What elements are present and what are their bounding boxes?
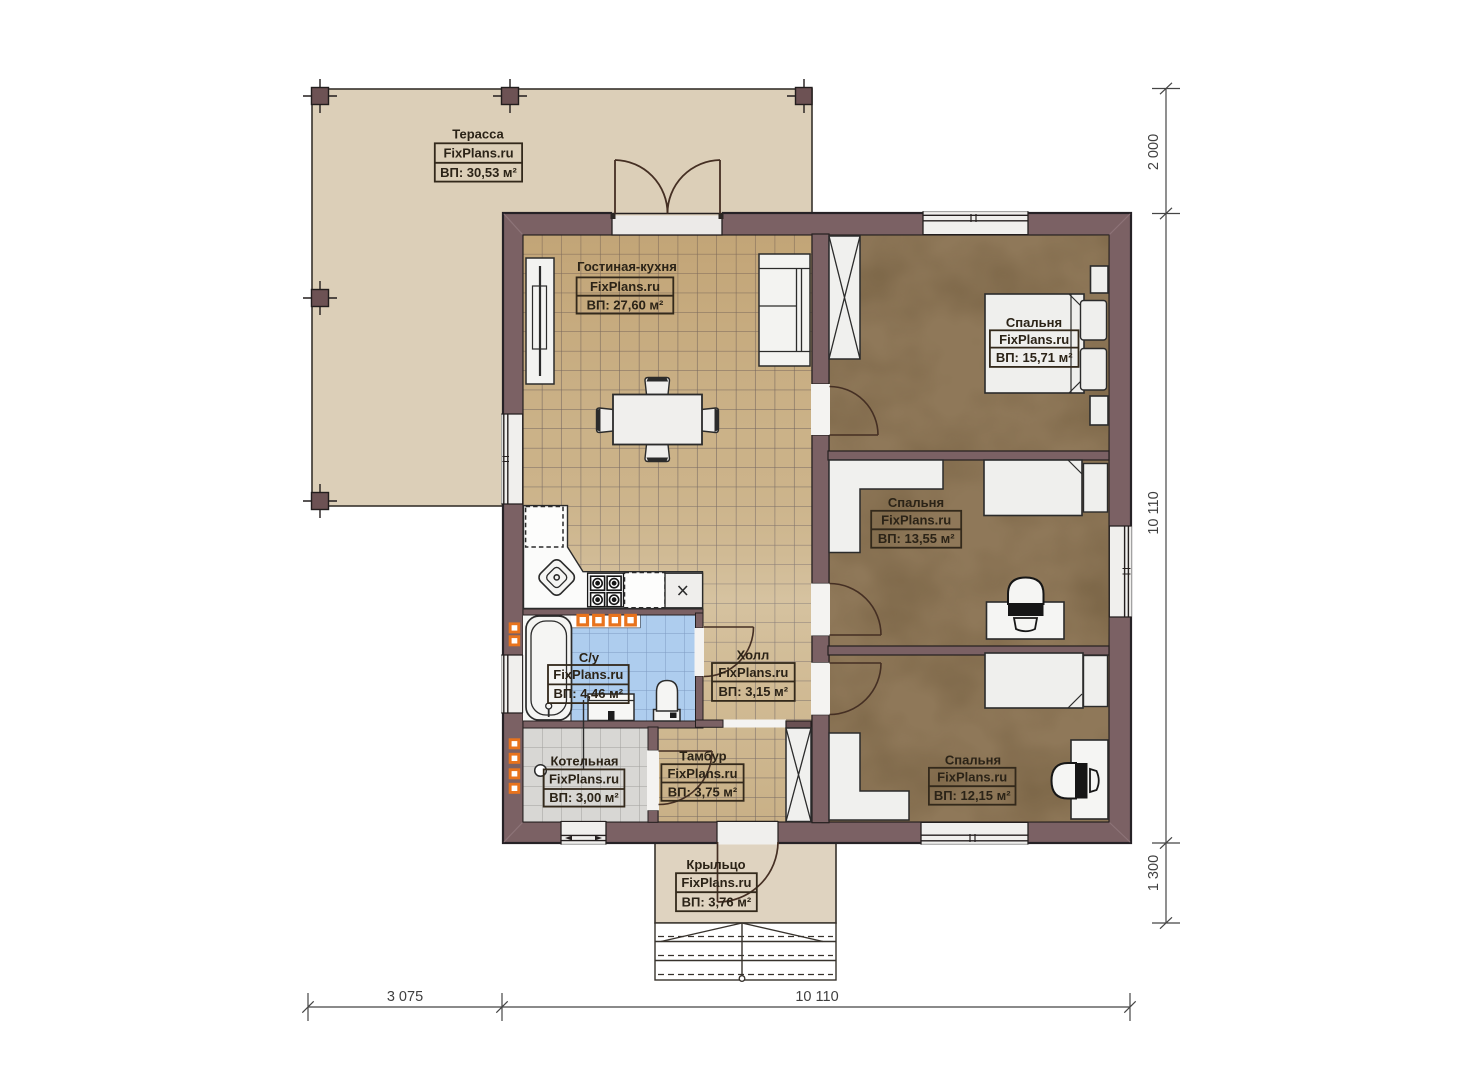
svg-text:ВП: 13,55 м²: ВП: 13,55 м² xyxy=(878,531,955,546)
svg-text:ВП: 4,46 м²: ВП: 4,46 м² xyxy=(554,686,624,701)
svg-text:ВП: 30,53 м²: ВП: 30,53 м² xyxy=(440,165,517,180)
svg-text:10 110: 10 110 xyxy=(795,989,838,1005)
svg-text:Спальня: Спальня xyxy=(1006,315,1062,330)
svg-text:2 000: 2 000 xyxy=(1146,134,1162,170)
svg-text:FixPlans.ru: FixPlans.ru xyxy=(553,667,623,682)
svg-text:ВП: 3,75 м²: ВП: 3,75 м² xyxy=(668,785,738,800)
svg-text:FixPlans.ru: FixPlans.ru xyxy=(443,146,513,161)
svg-text:FixPlans.ru: FixPlans.ru xyxy=(937,770,1007,785)
svg-text:FixPlans.ru: FixPlans.ru xyxy=(999,332,1069,347)
svg-text:Терасса: Терасса xyxy=(452,127,504,142)
svg-text:Спальня: Спальня xyxy=(945,752,1001,767)
svg-text:ВП: 15,71 м²: ВП: 15,71 м² xyxy=(996,350,1073,365)
svg-text:1 300: 1 300 xyxy=(1146,855,1162,891)
svg-text:ВП: 3,76 м²: ВП: 3,76 м² xyxy=(682,894,752,909)
svg-text:Гостиная-кухня: Гостиная-кухня xyxy=(577,259,677,274)
svg-text:ВП: 3,00 м²: ВП: 3,00 м² xyxy=(549,790,619,805)
svg-text:ВП: 12,15 м²: ВП: 12,15 м² xyxy=(934,788,1011,803)
svg-text:FixPlans.ru: FixPlans.ru xyxy=(590,279,660,294)
svg-text:Котельная: Котельная xyxy=(550,754,618,769)
svg-text:Крыльцо: Крыльцо xyxy=(686,857,745,872)
svg-text:FixPlans.ru: FixPlans.ru xyxy=(881,513,951,528)
svg-text:С/у: С/у xyxy=(579,650,600,665)
svg-text:Холл: Холл xyxy=(737,648,770,663)
svg-text:ВП: 27,60 м²: ВП: 27,60 м² xyxy=(587,298,664,313)
svg-text:FixPlans.ru: FixPlans.ru xyxy=(718,665,788,680)
svg-text:Тамбур: Тамбур xyxy=(679,749,726,764)
svg-text:3 075: 3 075 xyxy=(387,989,423,1005)
svg-text:FixPlans.ru: FixPlans.ru xyxy=(667,766,737,781)
svg-text:10 110: 10 110 xyxy=(1146,491,1162,534)
svg-text:ВП: 3,15 м²: ВП: 3,15 м² xyxy=(719,684,789,699)
svg-text:FixPlans.ru: FixPlans.ru xyxy=(549,772,619,787)
svg-text:Спальня: Спальня xyxy=(888,495,944,510)
svg-text:FixPlans.ru: FixPlans.ru xyxy=(681,875,751,890)
